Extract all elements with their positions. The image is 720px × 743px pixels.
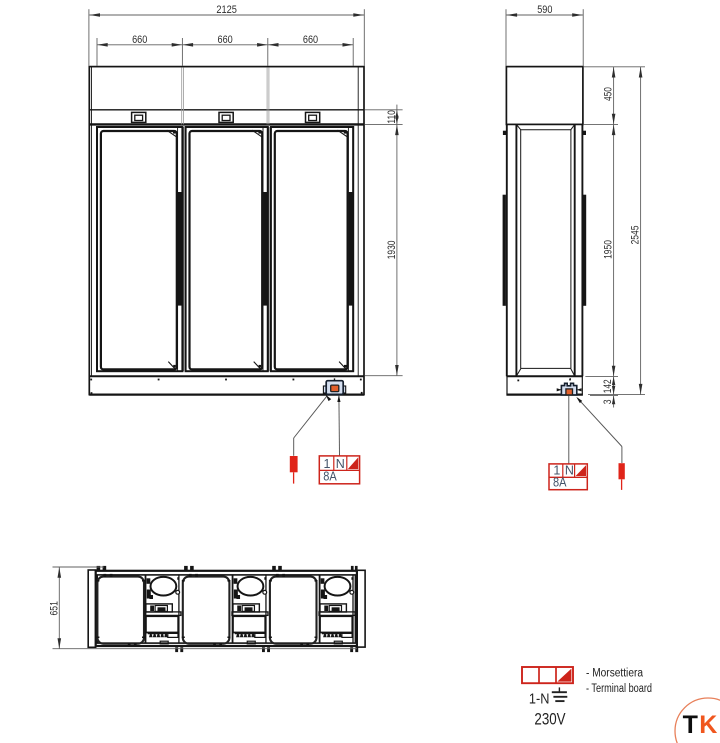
svg-text:- Morsettiera: - Morsettiera [586, 668, 644, 680]
svg-text:450: 450 [603, 87, 615, 101]
svg-text:2545: 2545 [629, 226, 641, 245]
svg-text:651: 651 [48, 601, 60, 615]
svg-text:110: 110 [386, 110, 398, 123]
svg-text:1-N: 1-N [529, 690, 550, 707]
svg-text:T: T [683, 711, 698, 739]
svg-text:142: 142 [602, 379, 614, 393]
svg-text:3: 3 [602, 399, 614, 404]
svg-text:590: 590 [537, 4, 552, 16]
svg-text:660: 660 [132, 34, 147, 46]
svg-text:8A: 8A [553, 475, 567, 490]
svg-text:2125: 2125 [216, 4, 237, 16]
svg-text:K: K [699, 711, 717, 739]
svg-text:230V: 230V [534, 710, 566, 729]
svg-text:N: N [336, 457, 345, 471]
svg-text:1950: 1950 [603, 240, 615, 259]
svg-text:8A: 8A [323, 469, 337, 484]
svg-text:- Terminal board: - Terminal board [586, 683, 652, 695]
svg-text:660: 660 [303, 34, 318, 46]
svg-text:1930: 1930 [386, 241, 398, 260]
svg-text:660: 660 [218, 34, 233, 46]
